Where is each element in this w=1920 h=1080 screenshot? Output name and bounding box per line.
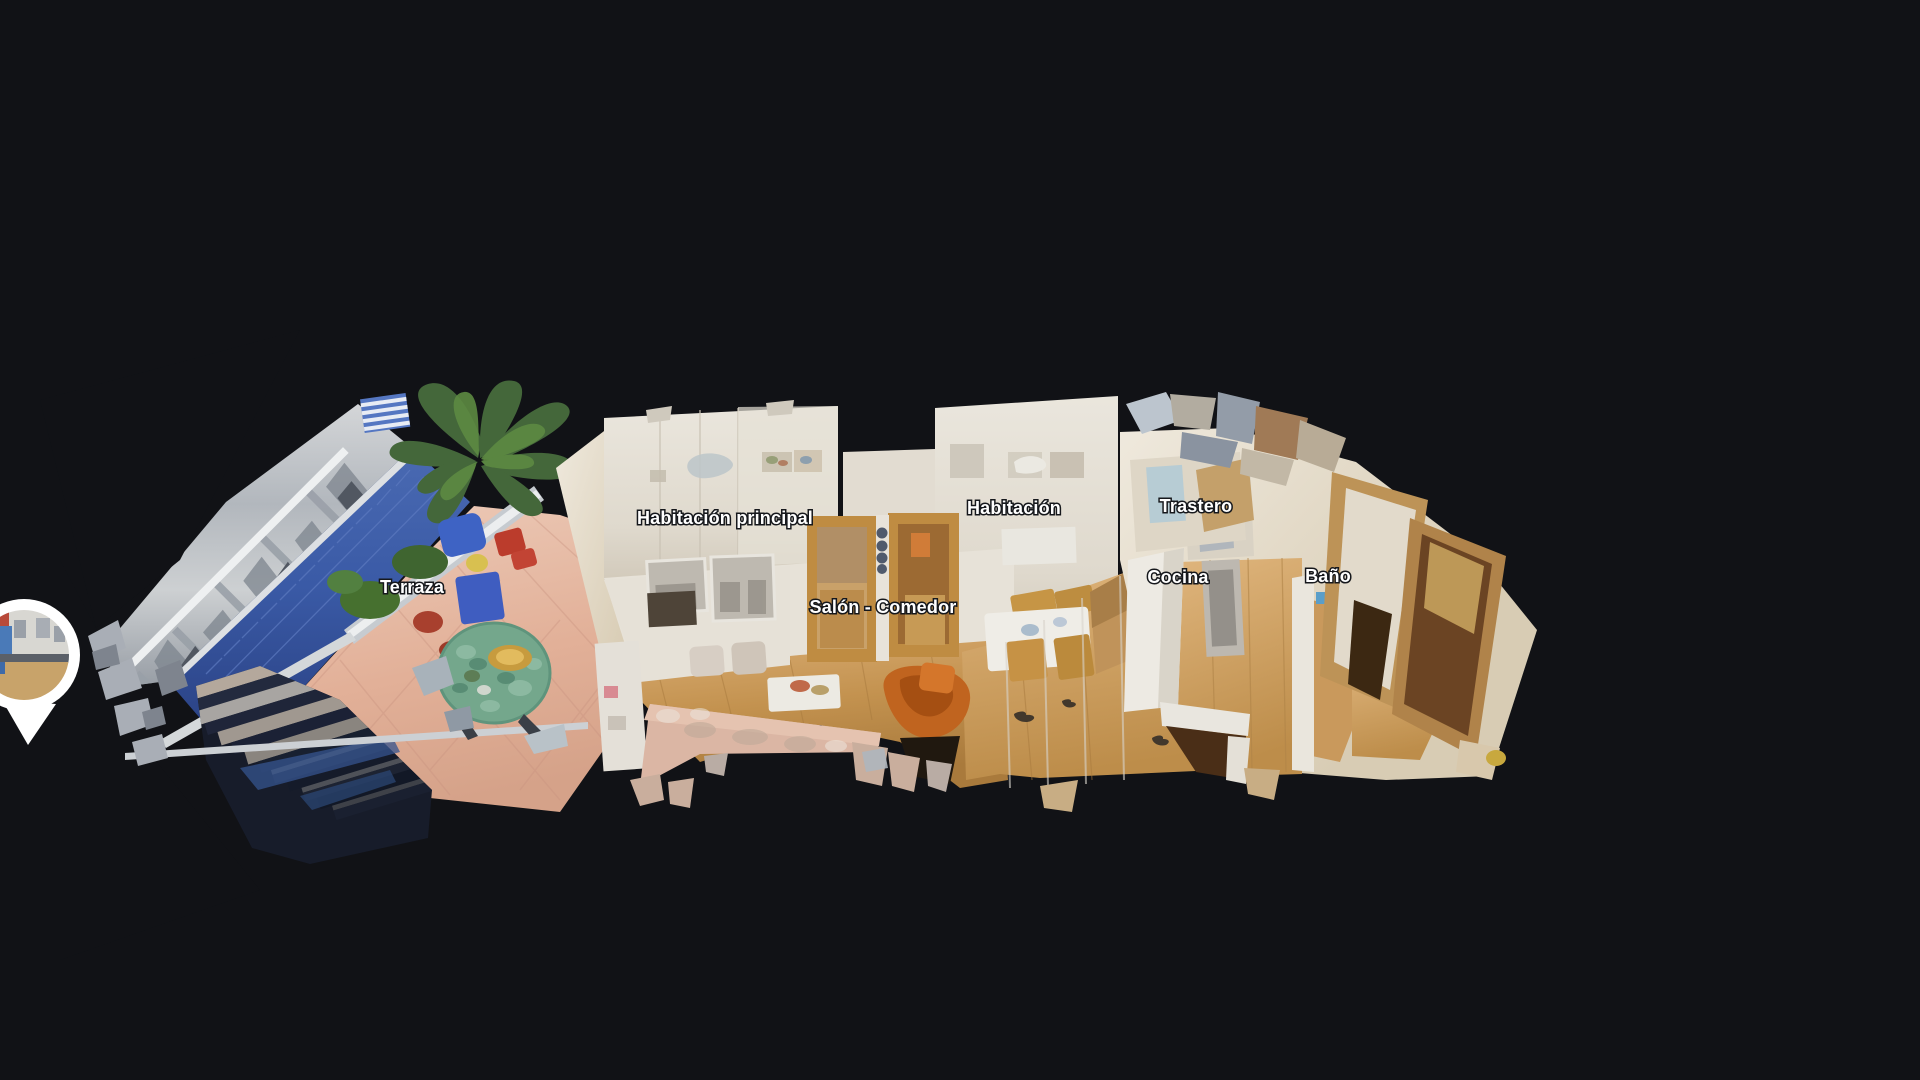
svg-text:Trastero: Trastero (1160, 496, 1233, 516)
svg-text:Terraza: Terraza (380, 577, 445, 597)
svg-text:Cocina: Cocina (1147, 567, 1209, 587)
svg-text:Baño: Baño (1305, 566, 1351, 586)
svg-text:Habitación principal: Habitación principal (637, 508, 813, 528)
svg-text:Habitación: Habitación (967, 498, 1061, 518)
svg-text:Salón - Comedor: Salón - Comedor (809, 597, 956, 617)
